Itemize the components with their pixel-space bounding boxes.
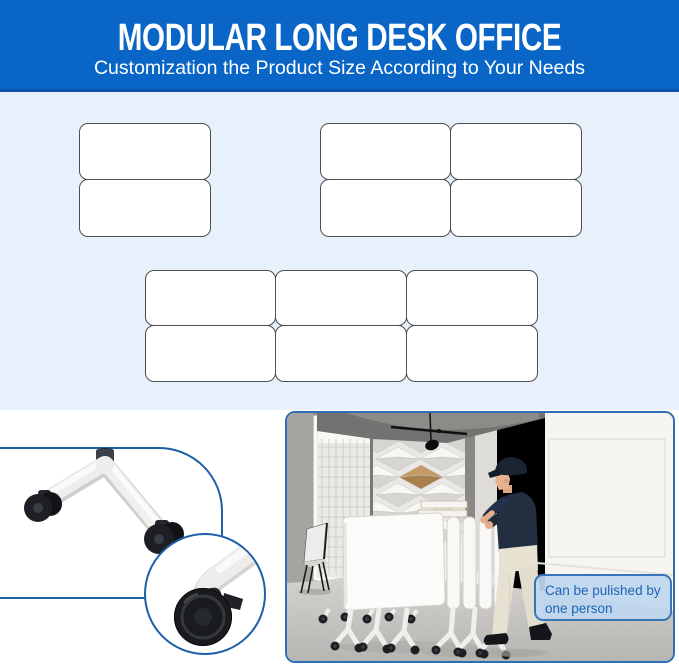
desk-top: [450, 123, 582, 180]
desk-top: [450, 179, 582, 237]
page-title: MODULAR LONG DESK OFFICE: [75, 20, 605, 56]
modular-layouts-section: [0, 92, 679, 410]
desk-top: [406, 270, 538, 326]
product-photo: Can be pulished by one person: [285, 411, 675, 663]
desk-top: [320, 179, 451, 237]
desk-top: [145, 325, 276, 382]
desk-top: [275, 270, 407, 326]
desk-top: [79, 179, 211, 237]
caster-wheel-icon: [24, 490, 62, 522]
header-banner: MODULAR LONG DESK OFFICE Customization t…: [0, 0, 679, 92]
desk-top: [275, 325, 407, 382]
bottom-area: Can be pulished by one person: [0, 410, 679, 664]
caster-detail-magnifier: [144, 533, 266, 655]
desk-layout-2x2: [320, 123, 582, 237]
caster-brake-detail-icon: [146, 535, 264, 653]
callout-box: Can be pulished by one person: [534, 574, 672, 621]
page-subtitle: Customization the Product Size According…: [0, 57, 679, 79]
desk-top: [320, 123, 451, 180]
desk-top: [79, 123, 211, 180]
desk-top: [406, 325, 538, 382]
desk-layout-3x2: [145, 270, 538, 382]
desk-layout-1x2: [79, 123, 211, 237]
callout-text: Can be pulished by one person: [545, 583, 661, 616]
desk-top: [145, 270, 276, 326]
